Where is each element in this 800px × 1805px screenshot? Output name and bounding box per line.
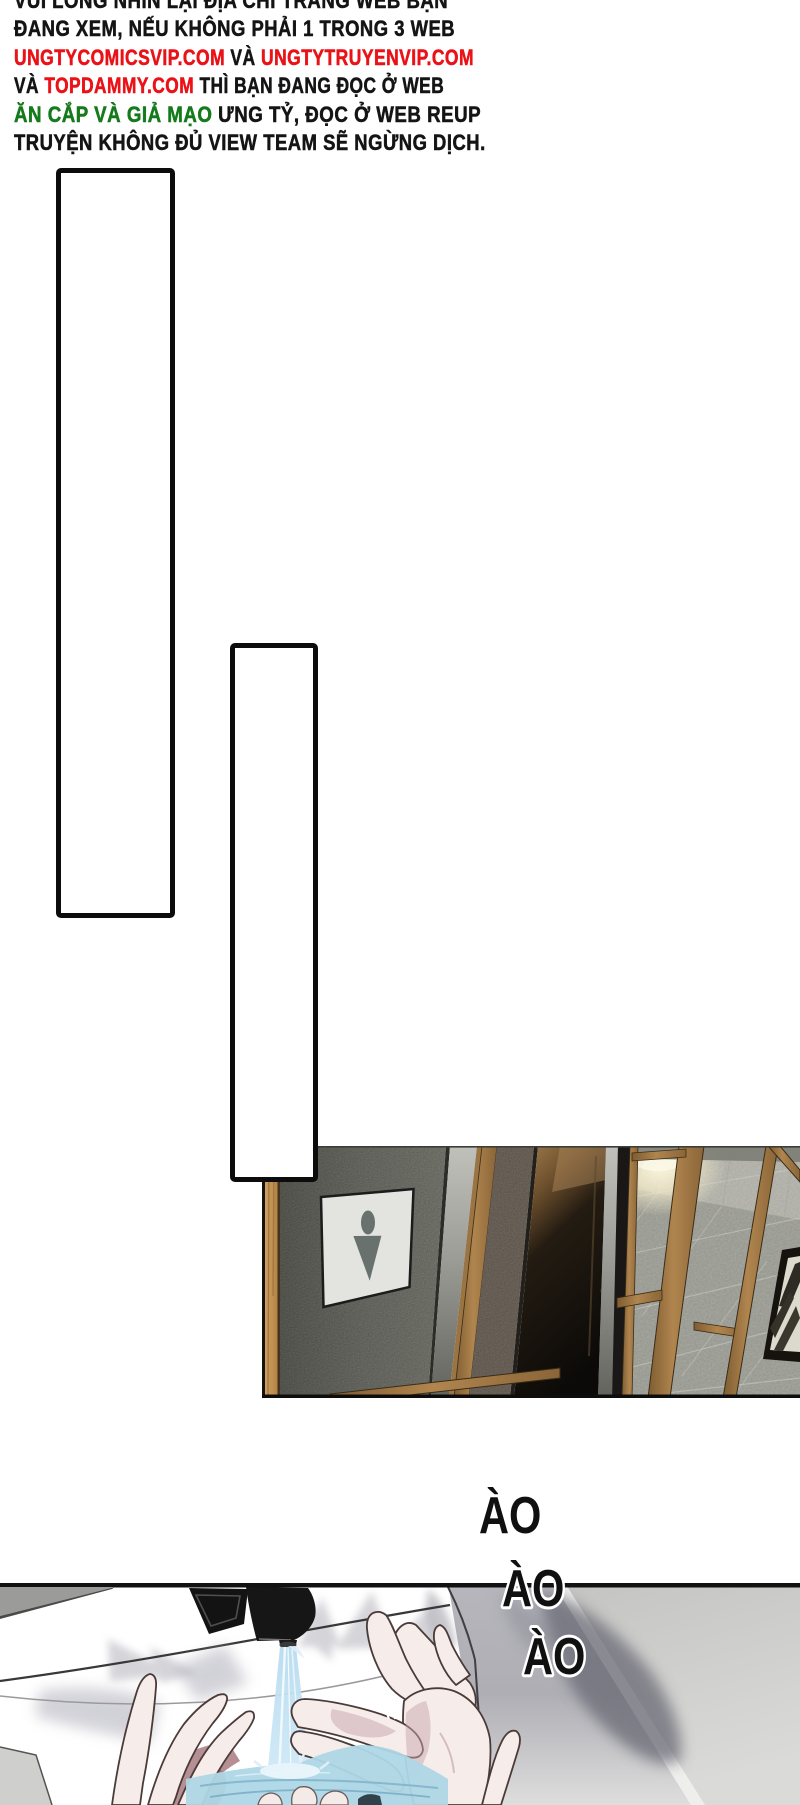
svg-text:ÀO: ÀO [523,1627,585,1686]
svg-text:ÀO: ÀO [479,1486,541,1545]
svg-text:ÀO: ÀO [502,1559,564,1618]
